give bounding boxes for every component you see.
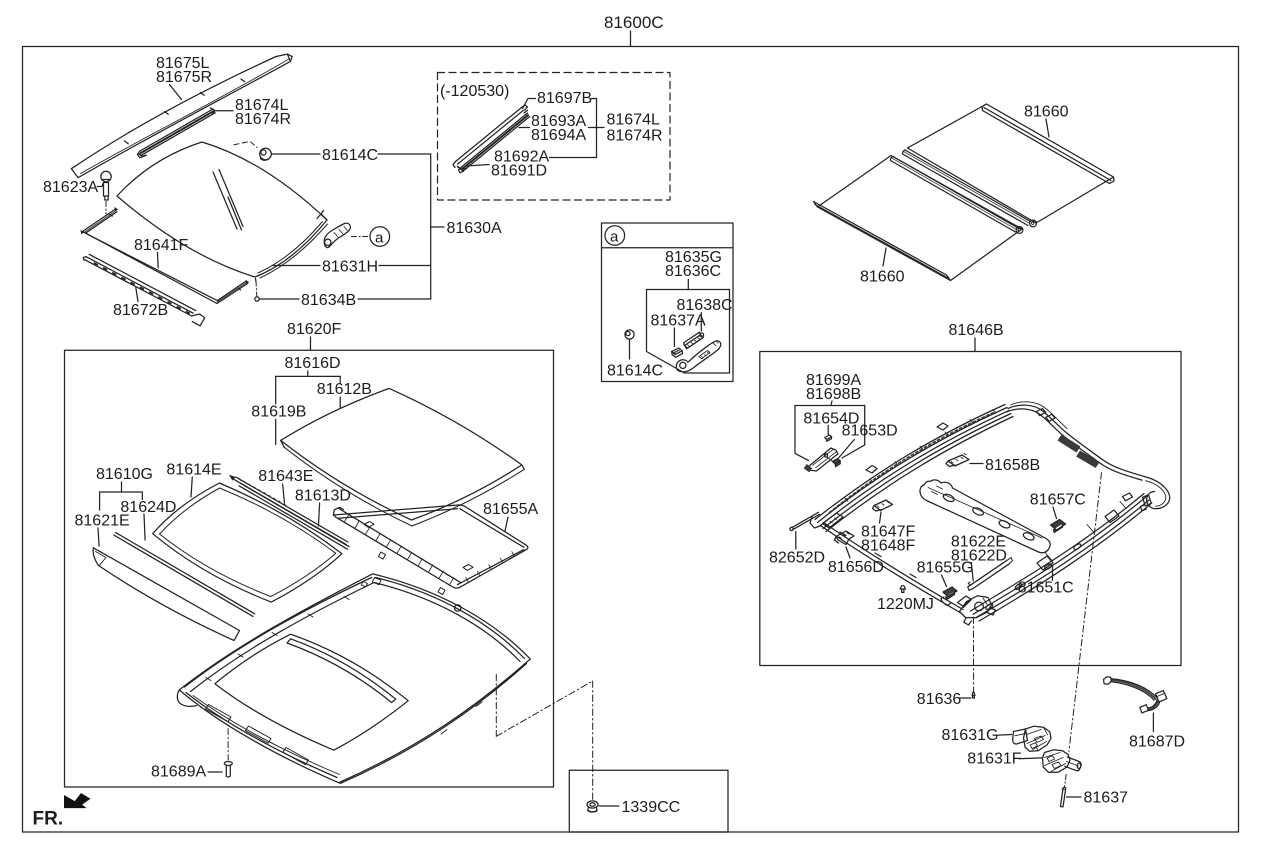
svg-text:81660: 81660 (1024, 104, 1069, 121)
svg-text:81687D: 81687D (1129, 734, 1185, 751)
svg-text:81614E: 81614E (166, 462, 221, 479)
svg-text:81698B: 81698B (806, 386, 861, 403)
svg-text:81600C: 81600C (604, 13, 664, 32)
svg-text:81613D: 81613D (295, 488, 351, 505)
svg-text:81641F: 81641F (134, 237, 188, 254)
svg-text:a: a (610, 229, 619, 246)
svg-text:81672B: 81672B (113, 302, 168, 319)
svg-text:81616D: 81616D (285, 355, 341, 372)
svg-text:81691D: 81691D (491, 163, 547, 180)
svg-text:81631F: 81631F (967, 751, 1021, 768)
svg-text:81636: 81636 (917, 691, 962, 708)
svg-text:1339CC: 1339CC (622, 799, 681, 816)
svg-text:81655G: 81655G (917, 560, 974, 577)
svg-text:(-120530): (-120530) (440, 83, 509, 100)
svg-text:81631G: 81631G (942, 727, 999, 744)
svg-text:81651C: 81651C (1018, 580, 1074, 597)
svg-text:81653D: 81653D (842, 423, 898, 440)
svg-text:81674R: 81674R (607, 128, 663, 145)
svg-text:81655A: 81655A (483, 501, 538, 518)
svg-text:81636C: 81636C (665, 263, 721, 280)
svg-text:81689A: 81689A (151, 764, 206, 781)
svg-text:81656D: 81656D (828, 559, 884, 576)
svg-text:81648F: 81648F (861, 538, 915, 555)
svg-text:81674R: 81674R (235, 111, 291, 128)
svg-text:81697B: 81697B (537, 90, 592, 107)
svg-text:81620F: 81620F (287, 321, 341, 338)
svg-text:81643E: 81643E (258, 468, 313, 485)
svg-text:FR.: FR. (33, 809, 64, 830)
svg-text:81660: 81660 (860, 269, 905, 286)
svg-text:81674L: 81674L (607, 112, 660, 129)
svg-text:81630A: 81630A (447, 220, 502, 237)
svg-text:81631H: 81631H (322, 259, 378, 276)
svg-text:81694A: 81694A (531, 127, 586, 144)
svg-text:a: a (375, 230, 384, 247)
svg-text:81614C: 81614C (322, 147, 378, 164)
svg-text:81646B: 81646B (949, 322, 1004, 339)
svg-text:81638C: 81638C (677, 297, 733, 314)
svg-text:81623A: 81623A (43, 179, 98, 196)
svg-text:81675R: 81675R (156, 69, 212, 86)
svg-text:81612B: 81612B (317, 381, 372, 398)
svg-text:81637A: 81637A (651, 313, 706, 330)
svg-text:81658B: 81658B (985, 457, 1040, 474)
svg-text:82652D: 82652D (769, 550, 825, 567)
svg-text:81614C: 81614C (607, 363, 663, 380)
svg-text:81624D: 81624D (120, 499, 176, 516)
svg-text:81619B: 81619B (251, 404, 306, 421)
svg-text:81610G: 81610G (96, 466, 153, 483)
svg-text:1220MJ: 1220MJ (877, 596, 934, 613)
svg-text:81657C: 81657C (1030, 492, 1086, 509)
svg-text:81637: 81637 (1084, 790, 1129, 807)
svg-text:81634B: 81634B (301, 292, 356, 309)
